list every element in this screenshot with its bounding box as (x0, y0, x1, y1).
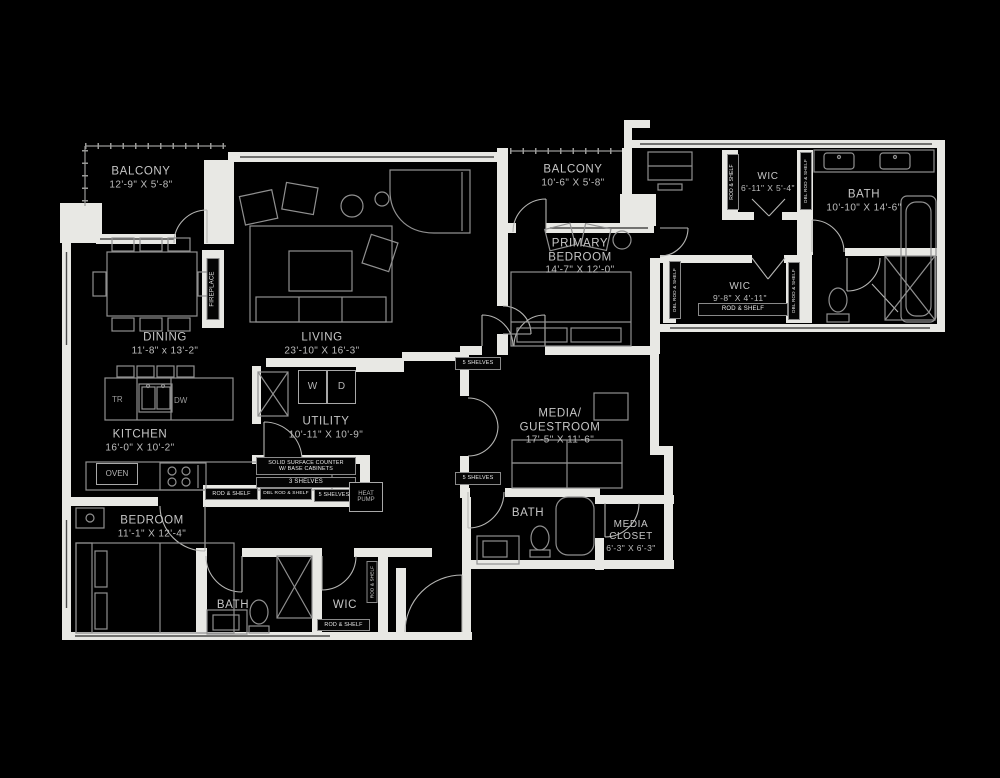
heat-pump: HEAT PUMP (349, 482, 383, 512)
bath3-fixtures (207, 556, 312, 634)
media-double-doors (468, 398, 498, 456)
wic-top-doors (752, 199, 785, 216)
dbl-rod-shelf-label: DBL ROD & SHELF (800, 152, 812, 210)
room-label-bath2: BATH (203, 599, 263, 613)
floor-plan-canvas: BALCONY 12'-9" X 5'-8" BALCONY 10'-6" X … (0, 0, 1000, 778)
room-label-primary-bedroom: PRIMARY BEDROOM 14'-7" X 12'-0" (533, 238, 628, 277)
area-rug (250, 226, 392, 322)
trash-label: TR (112, 395, 123, 404)
room-label-dining: DINING 11'-8" x 13'-2" (105, 331, 225, 356)
kitchen-island (105, 378, 233, 420)
bath3-door (206, 556, 242, 592)
suite-hall-door (660, 228, 688, 256)
room-label-media-guestroom: MEDIA/ GUESTROOM 17'-5" X 11'-6" (515, 408, 605, 447)
rod-shelf-label: ROD & SHELF (317, 619, 370, 631)
balcony2-door (513, 199, 546, 232)
toilet (829, 288, 847, 312)
toilet-room-door (847, 258, 880, 291)
armchair (282, 182, 318, 214)
oven: OVEN (96, 463, 138, 485)
shelves-3-label: 3 SHELVES (256, 477, 356, 488)
coffee-table (289, 251, 352, 291)
room-label-kitchen: KITCHEN 16'-0" X 10'-2" (80, 428, 200, 453)
room-label-bedroom2: BEDROOM 11'-1" X 12'-4" (92, 514, 212, 539)
shower (885, 256, 935, 320)
utility-closet (258, 372, 288, 416)
toilet (531, 526, 549, 550)
shelves-5-label: 5 SHELVES (455, 357, 501, 370)
room-label-media-closet: MEDIA CLOSET 6'-3" X 6'-3" (595, 519, 667, 553)
primary-bath-fixtures (814, 150, 936, 322)
dryer: D (327, 370, 356, 404)
hall-double-doors (482, 315, 545, 346)
living-furniture (239, 170, 470, 322)
cooktop (160, 463, 206, 490)
dbl-rod-shelf-label: DBL ROD & SHELF (788, 262, 800, 320)
wic2-door (322, 556, 356, 590)
bed (76, 543, 234, 633)
counter-note: SOLID SURFACE COUNTER W/ BASE CABINETS (256, 457, 356, 475)
wic-large-doors (752, 258, 785, 279)
room-label-balcony-right: BALCONY 10'-6" X 5'-8" (508, 163, 638, 188)
dresser (648, 152, 692, 190)
sofa (256, 297, 386, 322)
washer: W (298, 370, 327, 404)
piano-stool (375, 192, 389, 206)
floor-plan-drawing (0, 0, 1000, 778)
shelves-5-label: 5 SHELVES (314, 489, 354, 502)
fireplace-label: FIREPLACE (207, 258, 220, 320)
room-label-living: LIVING 23'-10" X 16'-3" (257, 331, 387, 356)
rod-shelf-label: ROD & SHELF (205, 488, 258, 500)
dbl-rod-shelf-label: DBL ROD & SHELF (669, 261, 681, 319)
rod-shelf-label: ROD & SHELF (367, 561, 378, 603)
entry-door (405, 575, 462, 632)
bar-stools (117, 366, 194, 377)
room-label-utility: UTILITY 10'-11" X 10'-9" (256, 415, 396, 440)
dishwasher-label: DW (174, 396, 187, 405)
rod-shelf-label: ROD & SHELF (698, 303, 788, 316)
bathtub (556, 497, 594, 555)
rod-shelf-label: ROD & SHELF (727, 154, 739, 210)
armchair (239, 190, 277, 225)
primary-bath-door (812, 220, 844, 252)
room-label-balcony-left: BALCONY 12'-9" X 5'-8" (81, 165, 201, 190)
shower (277, 556, 312, 618)
shelves-5-label: 5 SHELVES (455, 472, 501, 485)
grand-piano (390, 170, 470, 233)
dining-table-set (93, 238, 211, 331)
dbl-rod-shelf-label: DBL ROD & SHELF (260, 488, 312, 500)
room-label-primary-bath: BATH 10'-10" X 14'-6" (804, 188, 924, 213)
room-label-guest-bath: BATH (498, 507, 558, 521)
round-side-table (341, 195, 363, 217)
room-label-wic-large: WIC 9'-8" X 4'-11" (680, 281, 800, 303)
